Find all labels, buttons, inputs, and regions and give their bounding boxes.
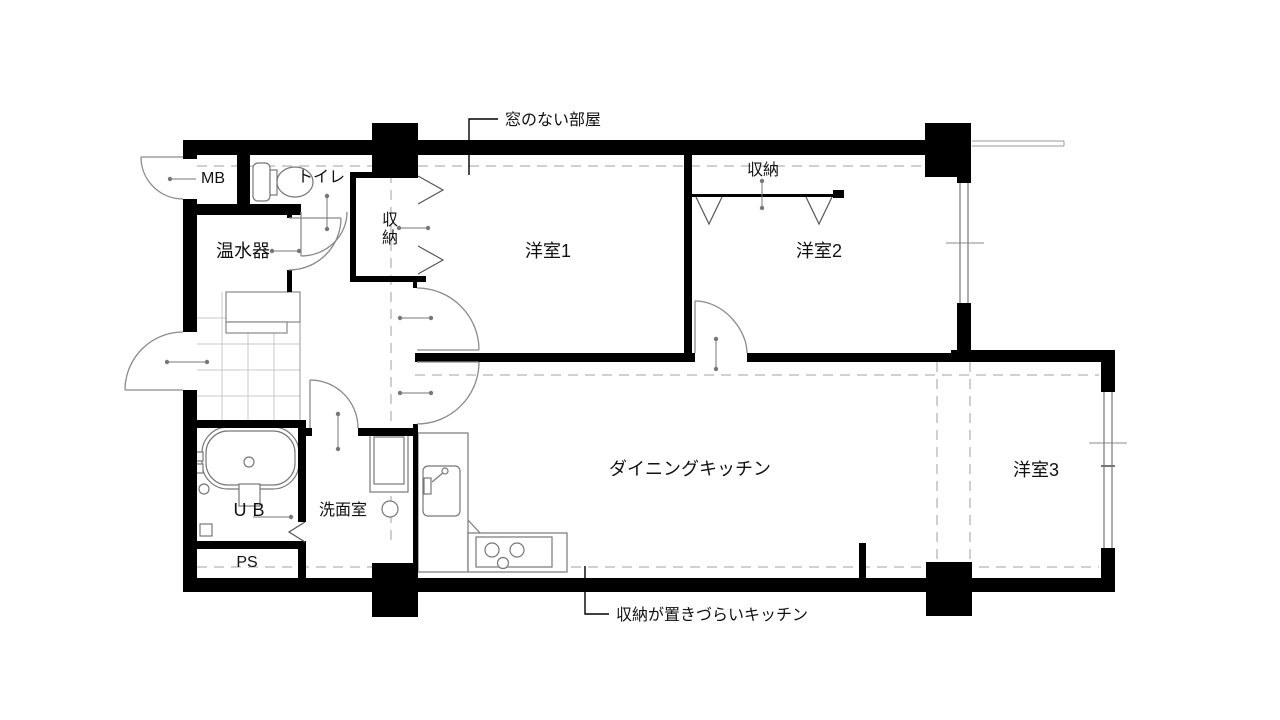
- walls: [183, 140, 1115, 592]
- room2-closet-bifold-left: [696, 197, 722, 224]
- balcony-rail-line: [972, 141, 1064, 146]
- room3-label: 洋室3: [1013, 461, 1059, 479]
- room2-window: [946, 183, 984, 303]
- hall-closet-bifold-bottom: [418, 246, 443, 274]
- room1-label: 洋室1: [525, 242, 571, 260]
- shoe-cabinet: [226, 292, 300, 333]
- floor-plan-page: MB トイレ 収納 温水器 洋室1 収納 洋室2 ダイニングキッチン 洋室3 U…: [0, 0, 1280, 720]
- doors: [125, 157, 747, 428]
- room2-label: 洋室2: [796, 242, 842, 260]
- mb-label: MB: [201, 171, 225, 187]
- mb-door: [141, 157, 183, 199]
- unit-bath-folding-door: [289, 522, 305, 542]
- room2-closet-label: 収納: [747, 163, 779, 179]
- kitchen-note-annotation: 収納が置きづらいキッチン: [616, 608, 808, 624]
- room1-door: [417, 288, 479, 350]
- room3-window: [1089, 392, 1127, 548]
- room2-closet-bifold-right: [806, 197, 832, 224]
- toilet-label: トイレ: [297, 170, 345, 186]
- pipe-space-label: PS: [236, 555, 257, 571]
- washroom-label: 洗面室: [319, 503, 367, 519]
- unit-bath-label: UB: [233, 501, 270, 519]
- kitchen-stove-fixture: [468, 520, 567, 572]
- water-heater-label: 温水器: [216, 242, 270, 260]
- kitchen-sink-fixture: [418, 433, 468, 572]
- washroom-door: [310, 380, 358, 428]
- washing-machine-fixture: [370, 433, 408, 517]
- no-window-annotation: 窓のない部屋: [505, 113, 601, 129]
- hall-closet-label: 収納: [379, 211, 395, 247]
- dining-kitchen-label: ダイニングキッチン: [609, 460, 771, 478]
- hall-closet-bifold-top: [418, 176, 443, 204]
- entrance-door: [125, 332, 183, 390]
- room2-door: [695, 301, 747, 353]
